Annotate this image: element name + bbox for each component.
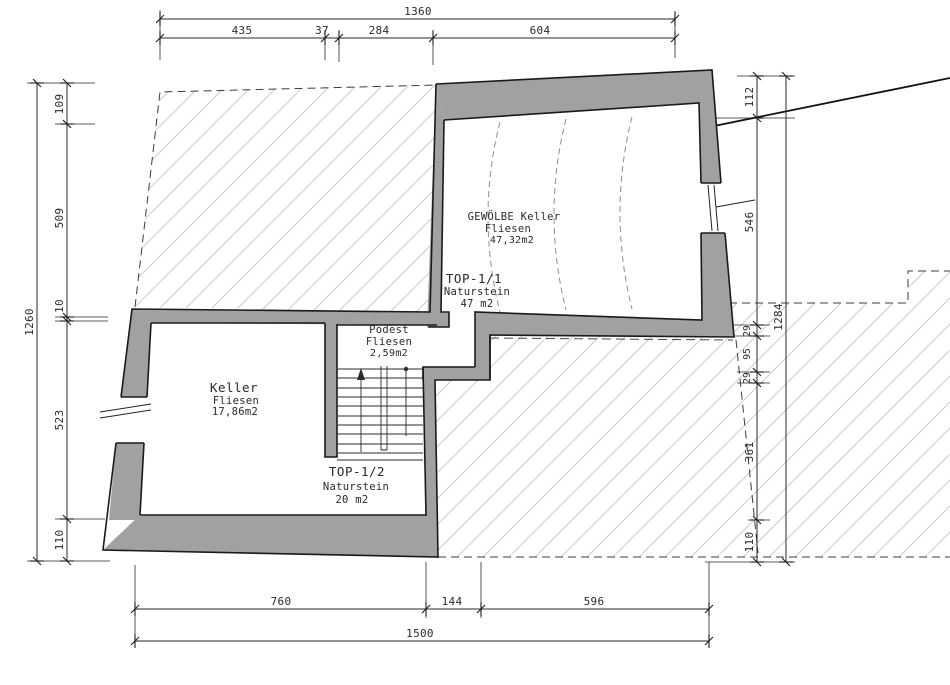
dim-bottom-seg-2: 596 xyxy=(584,595,605,608)
room-gewoelbe-finish: Fliesen xyxy=(485,223,531,235)
room-podest-name: Podest xyxy=(369,324,409,336)
dim-right-seg-4: 29 xyxy=(742,372,753,384)
dim-top-seg-1: 37 xyxy=(315,24,329,37)
dim-top-seg-3: 604 xyxy=(530,24,551,37)
hatch-area-top-left xyxy=(135,85,437,312)
dim-bottom-total: 1500 xyxy=(406,627,434,640)
dimension-left: 1260 109 509 10 523 110 xyxy=(23,79,110,565)
dim-top-seg-2: 284 xyxy=(369,24,390,37)
dim-right-seg-3: 95 xyxy=(742,348,753,359)
dim-left-seg-3: 523 xyxy=(53,410,66,431)
room-top11-area: 47 m2 xyxy=(460,298,493,310)
dim-right-seg-5: 361 xyxy=(743,442,756,463)
dim-left-seg-2: 10 xyxy=(53,299,66,313)
dim-left-seg-4: 110 xyxy=(53,530,66,551)
room-label-top12: TOP-1/2 Naturstein 20 m2 xyxy=(323,464,389,506)
room-gewoelbe-area: 47,32m2 xyxy=(490,235,534,246)
wall-podest-step xyxy=(423,335,490,380)
room-keller-name: Keller xyxy=(210,380,258,395)
dim-right-seg-2: 29 xyxy=(742,325,753,337)
room-keller-area: 17,86m2 xyxy=(212,406,258,418)
floor-plan-drawing: 1360 435 37 284 604 1260 109 509 10 523 … xyxy=(0,0,950,685)
dimension-bottom: 760 144 596 1500 xyxy=(131,562,713,648)
room-top11-name: TOP-1/1 xyxy=(446,271,502,286)
staircase xyxy=(337,366,423,460)
stair-up-arrow-head xyxy=(357,368,365,380)
room-top12-area: 20 m2 xyxy=(335,494,368,506)
room-label-keller: Keller Fliesen 17,86m2 xyxy=(210,380,259,418)
room-top12-finish: Naturstein xyxy=(323,481,389,493)
wall-left-upper xyxy=(121,309,151,397)
dim-right-seg-1: 546 xyxy=(743,212,756,233)
dim-top-total: 1360 xyxy=(404,5,432,18)
stair-walk-line-dot xyxy=(404,367,408,371)
dimension-top: 1360 435 37 284 604 xyxy=(156,5,679,65)
dim-bottom-seg-0: 760 xyxy=(271,595,292,608)
room-top12-name: TOP-1/2 xyxy=(329,464,385,479)
dim-right-seg-0: 112 xyxy=(743,87,756,108)
dim-top-seg-0: 435 xyxy=(232,24,253,37)
dim-left-seg-0: 109 xyxy=(53,94,66,115)
wall-stair-divider xyxy=(325,323,337,457)
room-label-top11: TOP-1/1 Naturstein 47 m2 xyxy=(444,271,510,310)
dim-right-seg-6: 110 xyxy=(743,532,756,553)
room-podest-finish: Fliesen xyxy=(366,336,412,348)
room-label-gewoelbe: GEWÖLBE Keller Fliesen 47,32m2 xyxy=(468,210,561,246)
dim-right-total: 1284 xyxy=(772,303,785,331)
window-left xyxy=(100,404,151,418)
dim-left-seg-1: 509 xyxy=(53,208,66,229)
room-gewoelbe-name: GEWÖLBE Keller xyxy=(468,210,561,223)
wall-top11-bottom xyxy=(475,312,734,337)
dim-left-total: 1260 xyxy=(23,308,36,336)
room-top11-finish: Naturstein xyxy=(444,286,510,298)
dim-bottom-seg-1: 144 xyxy=(442,595,463,608)
stair-divider-line xyxy=(381,366,387,450)
room-podest-area: 2,59m2 xyxy=(370,348,408,359)
floor-plan-page: 1360 435 37 284 604 1260 109 509 10 523 … xyxy=(0,0,950,685)
room-label-podest: Podest Fliesen 2,59m2 xyxy=(366,324,412,359)
